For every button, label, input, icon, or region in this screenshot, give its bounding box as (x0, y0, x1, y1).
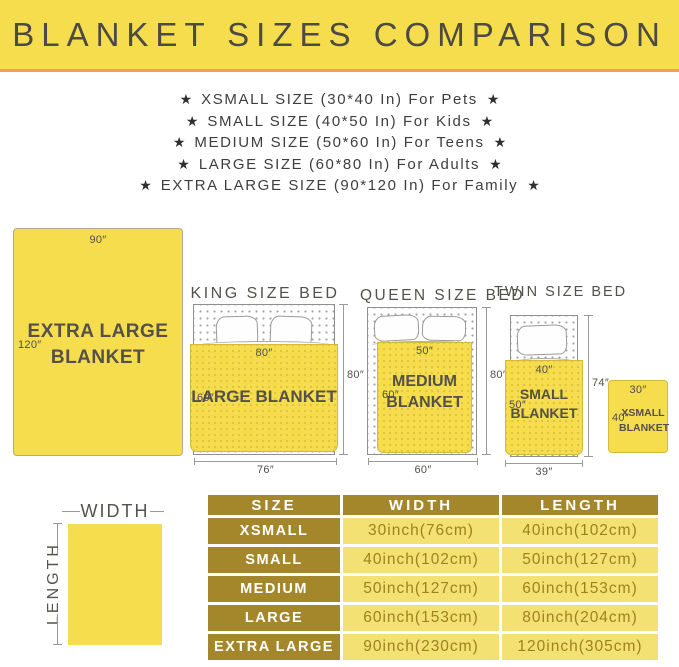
blanket-name-line: SMALL (506, 385, 582, 404)
width-dash-line (150, 511, 164, 512)
table-cell-length: 50inch(127cm) (502, 547, 658, 573)
star-icon: ★ (527, 177, 540, 193)
star-icon: ★ (481, 113, 494, 129)
bed-length-dimension-line (486, 307, 487, 455)
width-dimension-label: 40″ (506, 364, 582, 376)
table-cell-length: 40inch(102cm) (502, 518, 658, 544)
pillow (422, 316, 466, 342)
blanket-name-line: EXTRA LARGE (14, 319, 182, 345)
star-icon: ★ (180, 91, 193, 107)
page-title: BLANKET SIZES COMPARISON (12, 16, 667, 54)
size-list-text: SMALL SIZE (40*50 In) For Kids (207, 113, 471, 130)
star-icon: ★ (186, 113, 199, 129)
blanket-name-line: BLANKET (506, 404, 582, 423)
size-list-item: ★SMALL SIZE (40*50 In) For Kids★ (0, 111, 679, 133)
table-header-length: LENGTH (502, 495, 658, 515)
pillow (516, 324, 567, 356)
sizes-list: ★XSMALL SIZE (30*40 In) For Pets★ ★SMALL… (0, 89, 679, 197)
table-header-size: SIZE (208, 495, 340, 515)
small-blanket-diagram: 40″ 50″ SMALL BLANKET (505, 360, 583, 455)
bed-width-label: 76″ (194, 464, 337, 476)
bed-length-dimension-line (343, 304, 344, 455)
table-row-label: LARGE (208, 605, 340, 631)
table-header-width: WIDTH (343, 495, 499, 515)
length-dimension-line (57, 523, 58, 554)
blanket-name: XSMALL BLANKET (619, 406, 667, 435)
pillow (373, 314, 419, 342)
sample-blanket-rect (68, 524, 162, 645)
blanket-name-line: MEDIUM (378, 371, 471, 392)
length-dimension-line (57, 614, 58, 645)
length-key-label: LENGTH (42, 553, 66, 615)
table-row-label: SMALL (208, 547, 340, 573)
blanket-name-line: BLANKET (619, 421, 667, 436)
medium-blanket-diagram: 50″ 60″ MEDIUM BLANKET (377, 342, 472, 453)
width-dash-line (62, 511, 80, 512)
table-cell-length: 80inch(204cm) (502, 605, 658, 631)
bed-width-dimension-line (368, 461, 478, 462)
size-list-text: MEDIUM SIZE (50*60 In) For Teens (194, 134, 484, 151)
bed-width-label: 60″ (368, 464, 478, 476)
table-cell-width: 90inch(230cm) (343, 634, 499, 660)
width-dimension-label: 80″ (191, 347, 337, 359)
size-comparison-table: SIZE WIDTH LENGTH XSMALL 30inch(76cm) 40… (208, 495, 658, 660)
size-list-item: ★XSMALL SIZE (30*40 In) For Pets★ (0, 89, 679, 111)
star-icon: ★ (139, 177, 152, 193)
blanket-name: LARGE BLANKET (191, 387, 337, 407)
blanket-name-line: BLANKET (378, 392, 471, 413)
queen-bed-title: QUEEN SIZE BED (360, 287, 486, 305)
width-dimension-label: 90″ (14, 234, 182, 246)
table-cell-length: 120inch(305cm) (502, 634, 658, 660)
xsmall-blanket-diagram: 30″ 40″ XSMALL BLANKET (608, 380, 668, 453)
size-list-text: LARGE SIZE (60*80 In) For Adults (199, 156, 480, 173)
size-list-item: ★MEDIUM SIZE (50*60 In) For Teens★ (0, 132, 679, 154)
blanket-name-line: XSMALL (619, 406, 667, 421)
width-dimension-label: 30″ (609, 384, 667, 396)
bed-length-dimension-line (588, 315, 589, 457)
blanket-name: EXTRA LARGE BLANKET (14, 319, 182, 371)
size-list-text: XSMALL SIZE (30*40 In) For Pets (201, 91, 478, 108)
width-key-label: WIDTH (80, 501, 150, 522)
blanket-name-line: BLANKET (14, 345, 182, 371)
table-row-label: EXTRA LARGE (208, 634, 340, 660)
star-icon: ★ (487, 91, 500, 107)
blanket-diagrams: 90″ 120″ EXTRA LARGE BLANKET KING SIZE B… (0, 230, 679, 480)
table-row-label: MEDIUM (208, 576, 340, 602)
table-cell-length: 60inch(153cm) (502, 576, 658, 602)
width-dimension-label: 50″ (378, 345, 471, 357)
large-blanket-diagram: 80″ 60″ LARGE BLANKET (190, 344, 338, 452)
size-list-text: EXTRA LARGE SIZE (90*120 In) For Family (161, 177, 519, 194)
bed-width-label: 39″ (505, 466, 583, 478)
blanket-name: MEDIUM BLANKET (378, 371, 471, 413)
blanket-sizes-infographic: BLANKET SIZES COMPARISON ★XSMALL SIZE (3… (0, 0, 679, 667)
bed-width-dimension-line (505, 463, 583, 464)
star-icon: ★ (489, 156, 502, 172)
star-icon: ★ (494, 134, 507, 150)
blanket-name: SMALL BLANKET (506, 385, 582, 423)
table-cell-width: 30inch(76cm) (343, 518, 499, 544)
twin-bed-title: TWIN SIZE BED (494, 284, 602, 300)
table-cell-width: 60inch(153cm) (343, 605, 499, 631)
table-row-label: XSMALL (208, 518, 340, 544)
table-cell-width: 50inch(127cm) (343, 576, 499, 602)
bed-width-dimension-line (194, 461, 337, 462)
size-list-item: ★LARGE SIZE (60*80 In) For Adults★ (0, 154, 679, 176)
bed-length-label: 74″ (592, 377, 609, 389)
extra-large-blanket-diagram: 90″ 120″ EXTRA LARGE BLANKET (13, 228, 183, 456)
table-cell-width: 40inch(102cm) (343, 547, 499, 573)
size-list-item: ★EXTRA LARGE SIZE (90*120 In) For Family… (0, 175, 679, 197)
king-bed-title: KING SIZE BED (188, 285, 342, 303)
star-icon: ★ (177, 156, 190, 172)
star-icon: ★ (173, 134, 186, 150)
header-banner: BLANKET SIZES COMPARISON (0, 0, 679, 72)
bed-length-label: 80″ (347, 369, 364, 381)
